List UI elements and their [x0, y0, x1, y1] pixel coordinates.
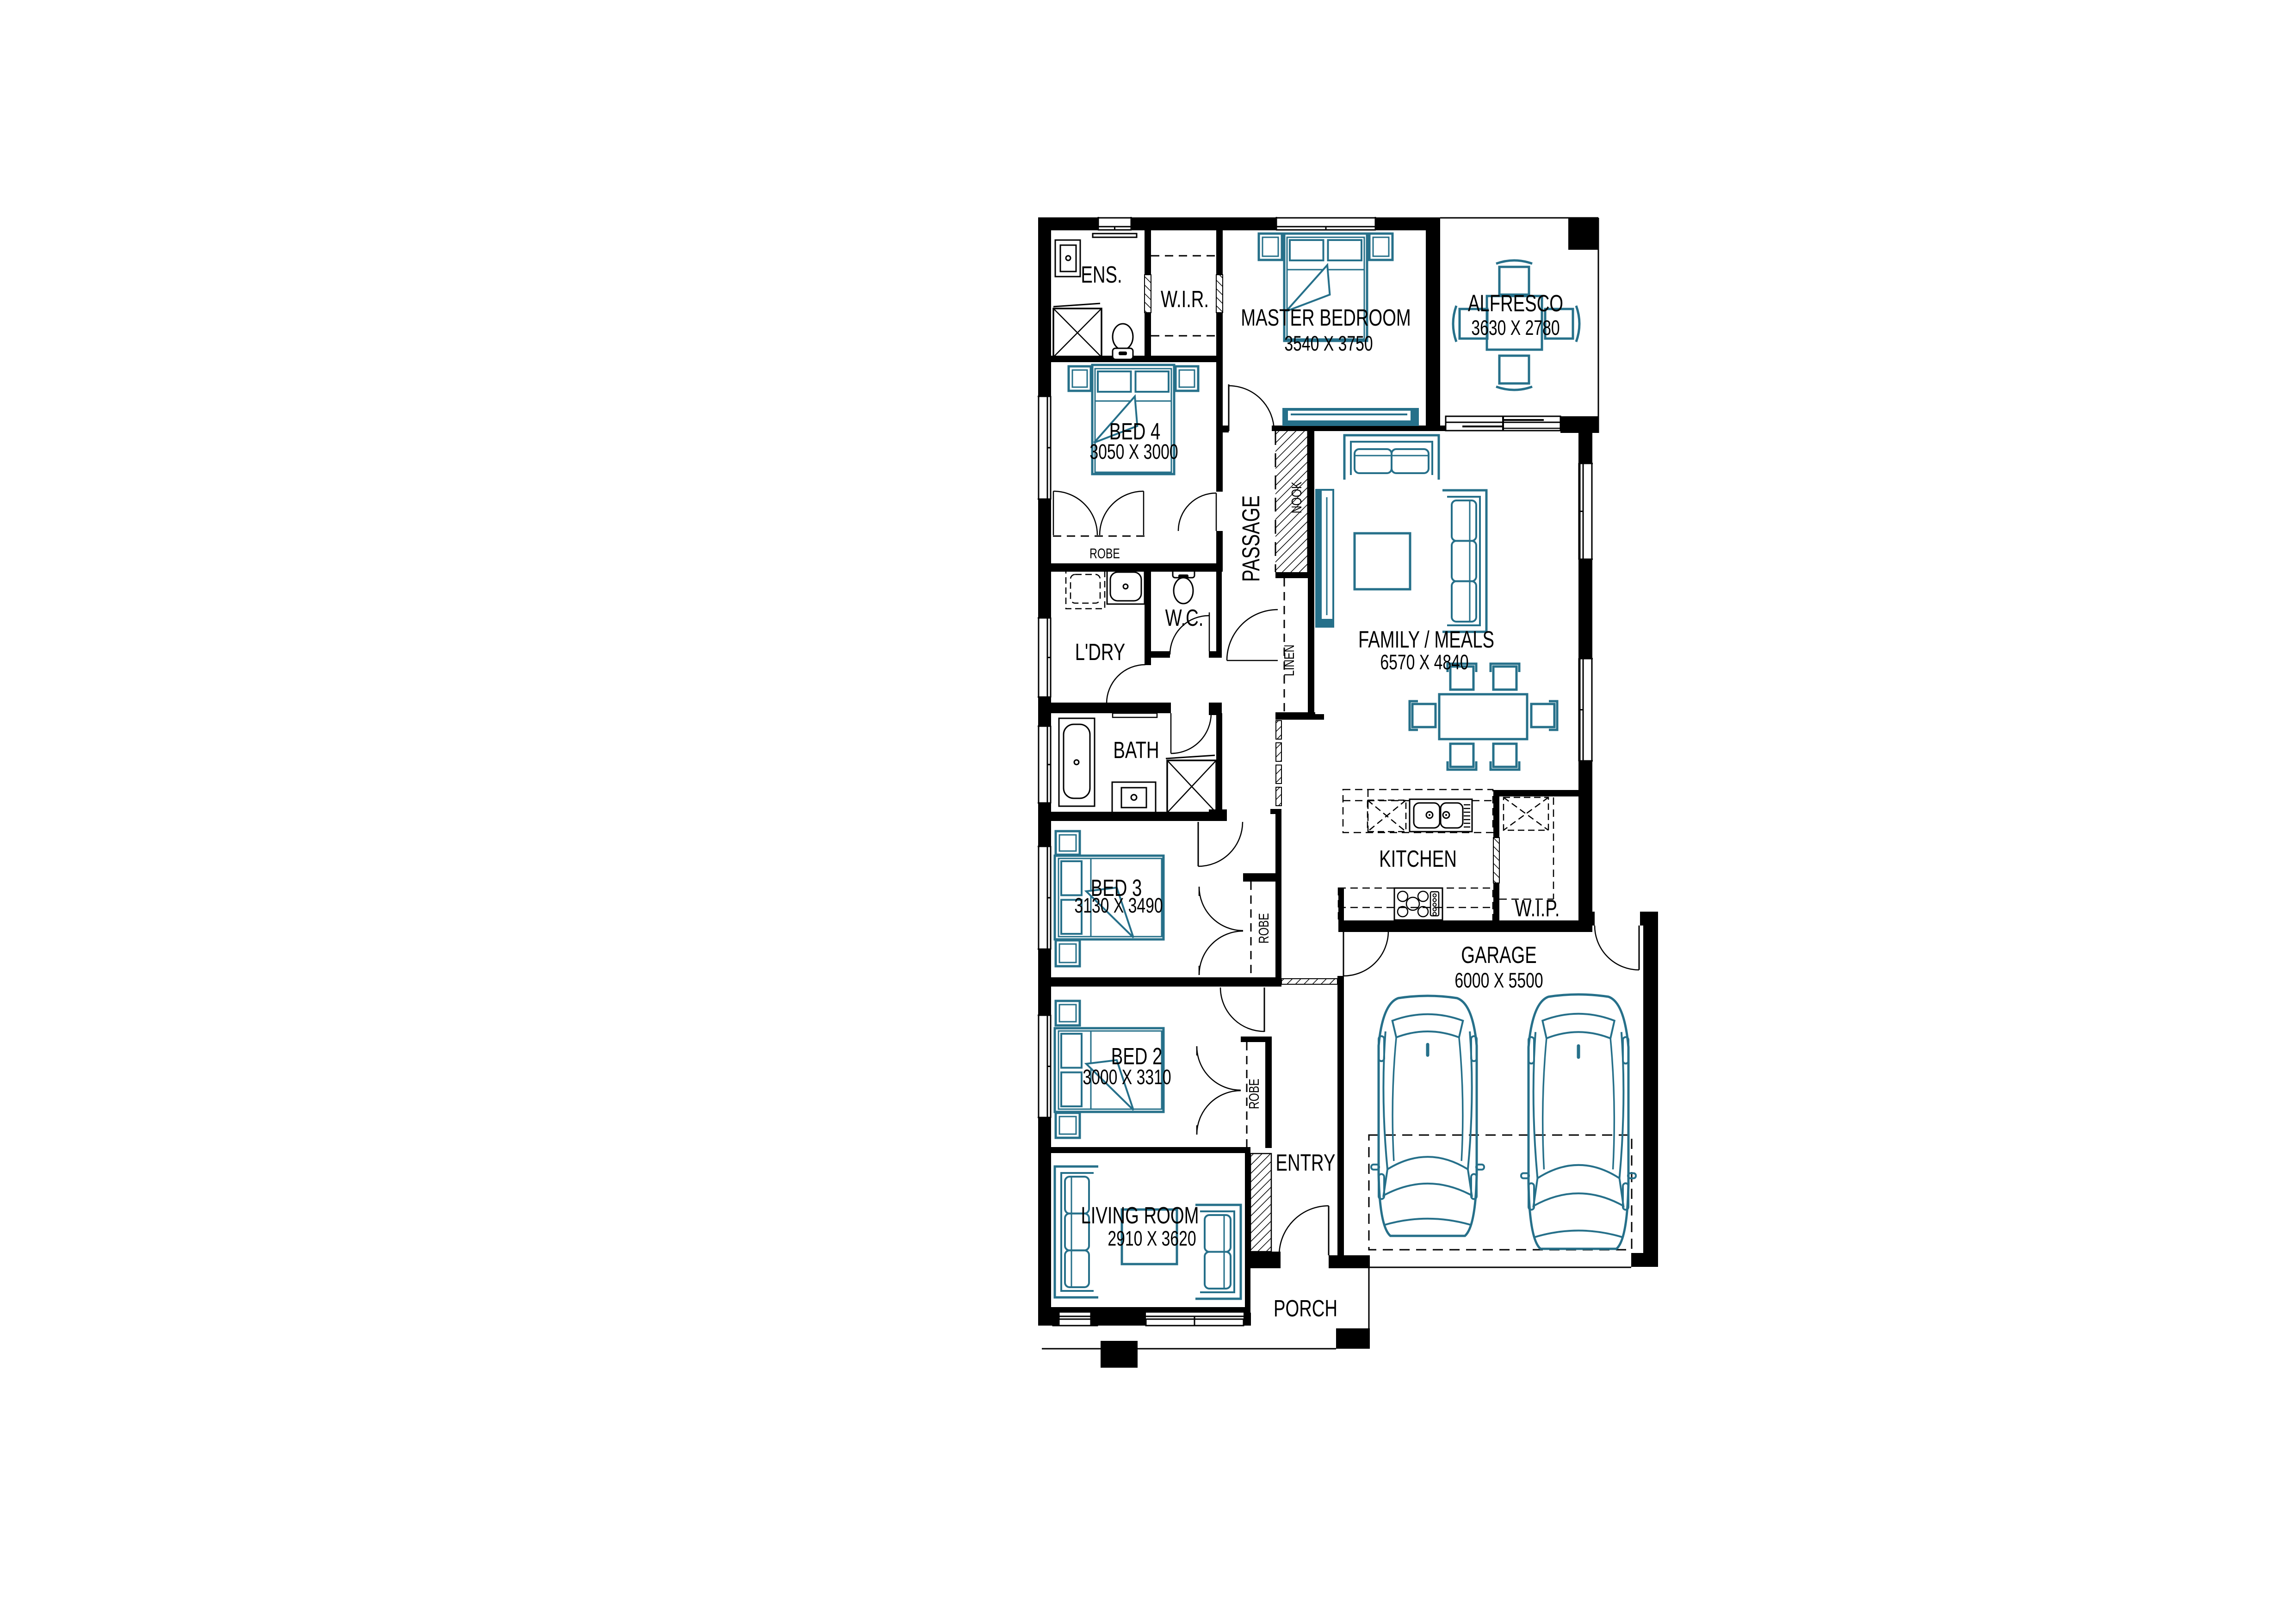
svg-text:LIVING ROOM: LIVING ROOM — [1081, 1202, 1199, 1229]
svg-text:FAMILY / MEALS: FAMILY / MEALS — [1358, 626, 1494, 653]
svg-text:ROBE: ROBE — [1256, 913, 1272, 944]
svg-text:W.C.: W.C. — [1165, 605, 1204, 631]
svg-text:L'DRY: L'DRY — [1075, 639, 1126, 666]
svg-text:BATH: BATH — [1113, 737, 1159, 764]
svg-text:W.I.P.: W.I.P. — [1515, 895, 1560, 922]
svg-text:6570 X 4840: 6570 X 4840 — [1380, 651, 1468, 674]
svg-text:ENS.: ENS. — [1081, 261, 1122, 288]
svg-text:ENTRY: ENTRY — [1276, 1149, 1336, 1176]
svg-text:3630 X 2780: 3630 X 2780 — [1471, 316, 1560, 339]
svg-text:3540 X 3750: 3540 X 3750 — [1284, 332, 1373, 355]
svg-text:LINEN: LINEN — [1281, 645, 1297, 676]
svg-text:PASSAGE: PASSAGE — [1237, 495, 1264, 582]
svg-text:3130 X 3490: 3130 X 3490 — [1074, 894, 1163, 917]
svg-text:GARAGE: GARAGE — [1461, 942, 1537, 969]
svg-text:W.I.R.: W.I.R. — [1161, 286, 1209, 313]
svg-text:6000 X 5500: 6000 X 5500 — [1454, 969, 1543, 992]
svg-text:ROBE: ROBE — [1089, 545, 1120, 562]
svg-text:NOOK: NOOK — [1288, 482, 1305, 513]
svg-text:KITCHEN: KITCHEN — [1379, 845, 1457, 872]
svg-text:3000 X 3310: 3000 X 3310 — [1083, 1066, 1171, 1089]
svg-text:ALFRESCO: ALFRESCO — [1468, 290, 1563, 317]
svg-text:PORCH: PORCH — [1274, 1295, 1337, 1322]
svg-text:3050 X 3000: 3050 X 3000 — [1089, 440, 1178, 463]
svg-text:2910 X 3620: 2910 X 3620 — [1108, 1227, 1196, 1250]
svg-text:MASTER BEDROOM: MASTER BEDROOM — [1241, 304, 1411, 331]
svg-text:ROBE: ROBE — [1246, 1079, 1262, 1109]
